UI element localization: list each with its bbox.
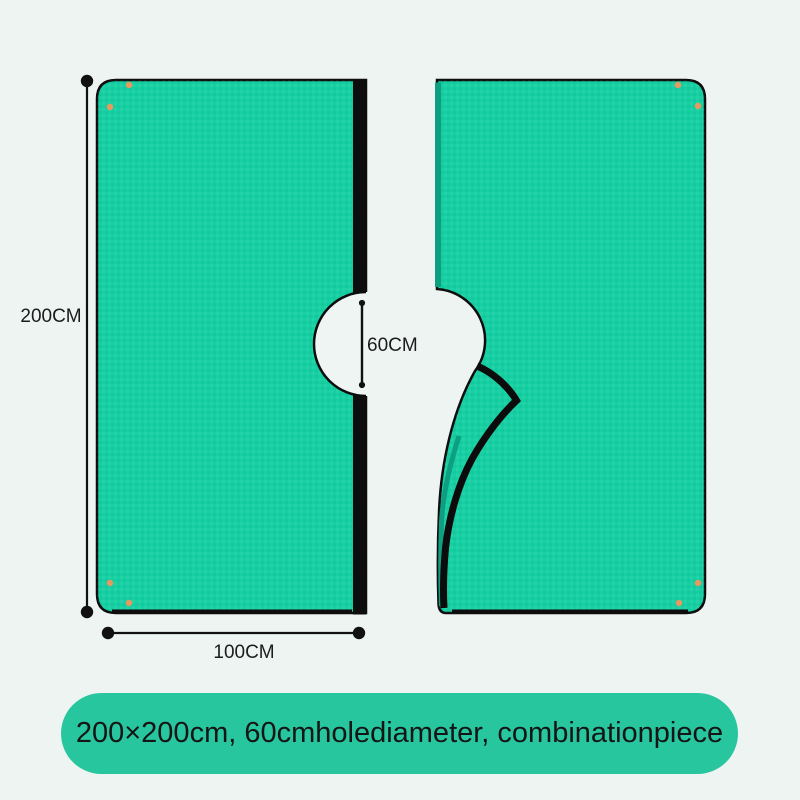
right-sheet-fabric-texture bbox=[437, 80, 705, 613]
snap-dot bbox=[695, 580, 701, 586]
caption-banner: 200×200cm, 60cmholediameter, combination… bbox=[61, 693, 738, 774]
width-dimension-end-dot-right bbox=[353, 627, 365, 639]
snap-dot bbox=[126, 82, 132, 88]
height-dimension-label: 200CM bbox=[20, 306, 81, 327]
snap-dot bbox=[126, 600, 132, 606]
height-dimension-end-dot-bottom bbox=[81, 606, 93, 618]
width-dimension: 100CM bbox=[102, 627, 365, 663]
snap-dot bbox=[676, 600, 682, 606]
hole-dimension-end-dot-bottom bbox=[359, 382, 365, 388]
height-dimension: 200CM bbox=[20, 75, 93, 618]
product-image: 200CM 100CM bbox=[0, 0, 800, 800]
caption-text: 200×200cm, 60cmholediameter, combination… bbox=[76, 717, 723, 750]
snap-dot bbox=[107, 104, 113, 110]
snap-dot bbox=[107, 580, 113, 586]
left-drape-sheet bbox=[97, 79, 369, 615]
width-dimension-end-dot-left bbox=[102, 627, 114, 639]
snap-dot bbox=[675, 82, 681, 88]
height-dimension-end-dot-top bbox=[81, 75, 93, 87]
hole-dimension-end-dot-top bbox=[359, 300, 365, 306]
diagram-canvas: 200CM 100CM bbox=[0, 0, 800, 800]
hole-dimension-label: 60CM bbox=[367, 335, 418, 356]
right-drape-sheet bbox=[437, 80, 705, 613]
snap-dot bbox=[695, 103, 701, 109]
width-dimension-label: 100CM bbox=[213, 642, 274, 663]
